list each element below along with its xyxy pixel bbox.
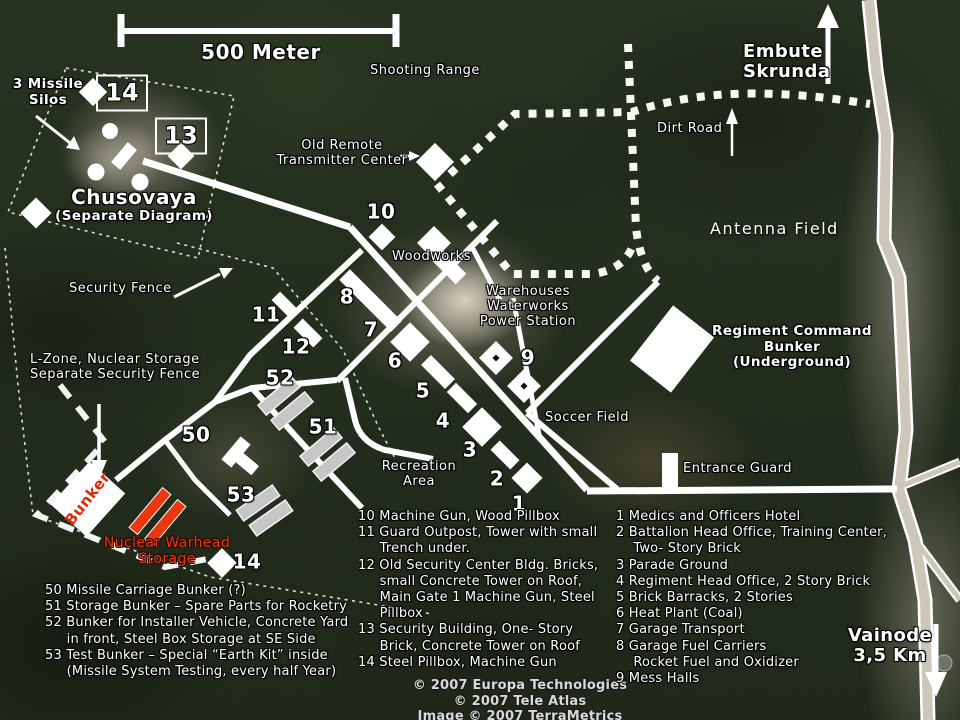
missile-silo-1 bbox=[102, 123, 118, 139]
map-screenshot: © 2007 Europa Technologies© 2007 Tele At… bbox=[0, 0, 960, 720]
bldg-entrance-guard bbox=[662, 453, 678, 490]
missile-silo-2 bbox=[88, 164, 105, 181]
missile-silo-3 bbox=[132, 174, 149, 191]
road-entrance bbox=[587, 489, 897, 491]
terrain-grain bbox=[0, 0, 960, 720]
watermark-circle bbox=[936, 655, 952, 671]
map-overlay bbox=[0, 0, 960, 720]
